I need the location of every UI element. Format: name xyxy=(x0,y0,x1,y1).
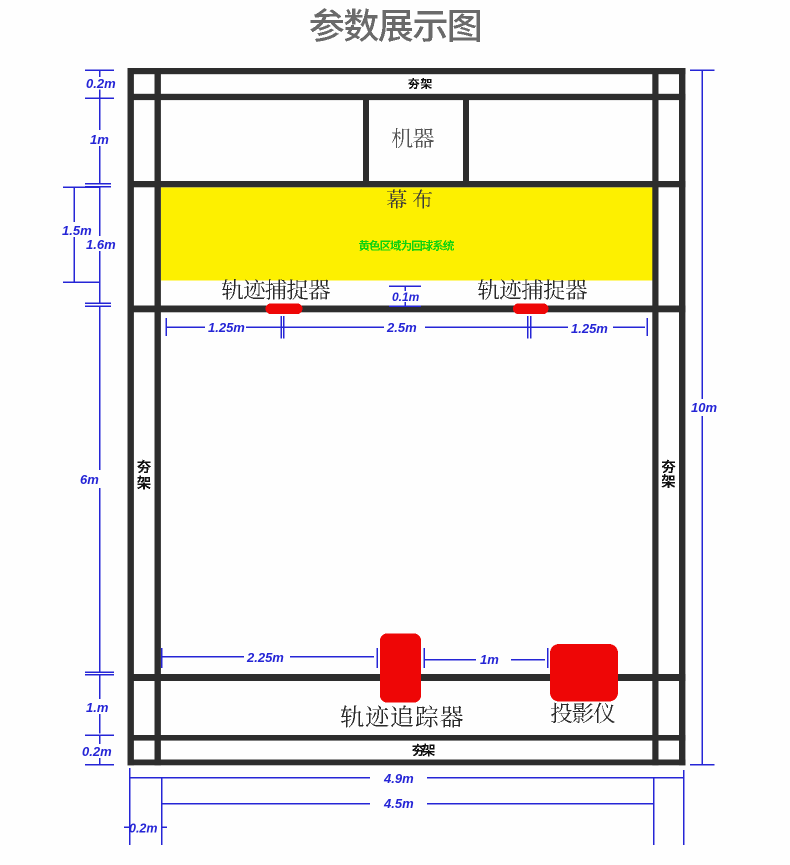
svg-text:1.25m: 1.25m xyxy=(208,320,245,335)
svg-text:0.2m: 0.2m xyxy=(86,76,116,91)
svg-text:1.m: 1.m xyxy=(86,700,109,715)
svg-text:2.5m: 2.5m xyxy=(386,320,417,335)
svg-text:2.25m: 2.25m xyxy=(246,650,284,665)
svg-text:1m: 1m xyxy=(90,132,109,147)
svg-text:1m: 1m xyxy=(480,652,499,667)
svg-text:4.9m: 4.9m xyxy=(383,771,414,786)
svg-text:0.1m: 0.1m xyxy=(392,290,420,304)
svg-text:1.5m: 1.5m xyxy=(62,223,92,238)
svg-text:1.6m: 1.6m xyxy=(86,237,116,252)
svg-text:4.5m: 4.5m xyxy=(383,796,414,811)
svg-text:0.2m: 0.2m xyxy=(129,822,158,836)
svg-text:10m: 10m xyxy=(691,400,717,415)
svg-text:6m: 6m xyxy=(80,472,99,487)
svg-text:1.25m: 1.25m xyxy=(571,321,608,336)
svg-text:0.2m: 0.2m xyxy=(82,744,112,759)
